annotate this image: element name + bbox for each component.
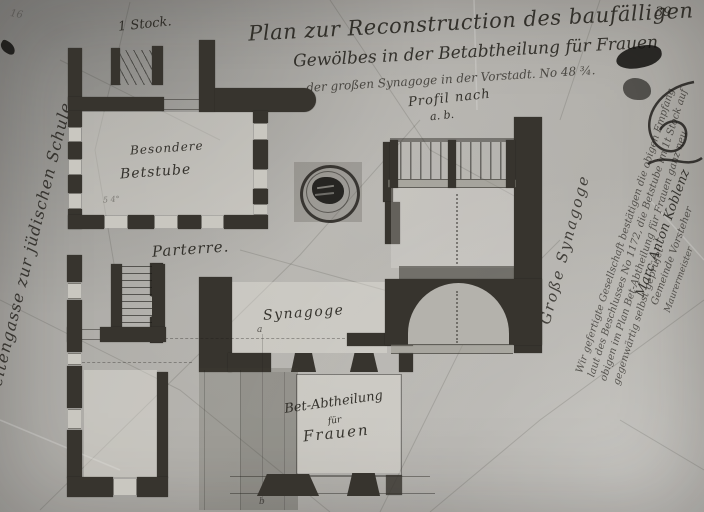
wall-segment xyxy=(128,215,154,229)
window-opening xyxy=(68,409,81,429)
pier xyxy=(386,475,402,495)
window-opening xyxy=(254,123,267,140)
wall-segment xyxy=(399,353,413,372)
section-trace-line xyxy=(204,370,205,510)
wall-segment xyxy=(224,215,268,229)
pier xyxy=(347,473,380,496)
wall-segment xyxy=(68,111,82,127)
window-opening xyxy=(68,353,81,365)
construction-line xyxy=(82,362,192,363)
window-opening xyxy=(69,193,81,209)
wall-segment xyxy=(253,140,268,169)
window-opening xyxy=(68,283,81,299)
door-opening xyxy=(81,329,100,340)
section-point-b: b xyxy=(259,498,265,507)
section-axis-dotted xyxy=(456,194,458,264)
stair-wall xyxy=(152,264,165,330)
balustrade-post xyxy=(506,140,515,188)
wall-segment xyxy=(67,255,82,282)
wall-segment xyxy=(68,175,82,193)
wall-segment xyxy=(137,477,168,497)
staircase-upper xyxy=(120,50,152,85)
vault-layer-band xyxy=(399,266,515,279)
window-opening xyxy=(254,204,267,215)
wall-segment xyxy=(100,327,166,342)
wall-segment xyxy=(178,215,201,229)
scanned-plan-sheet: 39 16 Plan zur Reconstruction des baufäl… xyxy=(0,0,704,512)
pier xyxy=(350,353,378,372)
window-opening xyxy=(254,169,267,189)
wall-segment xyxy=(68,97,164,111)
staircase-lower xyxy=(122,266,152,326)
wall-segment xyxy=(67,300,82,352)
door-opening xyxy=(113,479,137,495)
window-opening xyxy=(69,127,81,142)
corner-mark: 16 xyxy=(9,9,23,21)
wall-segment xyxy=(67,477,113,497)
wall-segment xyxy=(67,366,82,408)
section-title-2: a. b. xyxy=(429,109,454,122)
construction-line xyxy=(165,338,345,339)
window-opening xyxy=(201,216,224,228)
window-opening xyxy=(69,159,81,175)
section-trace-line xyxy=(240,370,241,510)
wall-segment xyxy=(199,40,215,112)
wall-segment xyxy=(68,142,82,159)
wall-segment xyxy=(68,215,104,229)
wall-segment xyxy=(253,111,268,123)
arch-axis-dotted xyxy=(456,291,458,343)
stair-wall xyxy=(152,46,163,85)
section-floor-band xyxy=(391,344,513,354)
lower-room-floor xyxy=(84,370,157,477)
window-opening xyxy=(154,216,178,228)
wall-segment xyxy=(157,372,168,478)
wall-segment xyxy=(253,189,268,204)
door-opening xyxy=(164,99,199,110)
stair-wall xyxy=(111,264,122,330)
signature-flourish xyxy=(630,72,704,182)
balustrade-post xyxy=(448,140,456,188)
scale-marks: 5 4° xyxy=(103,195,120,204)
window-opening xyxy=(104,216,128,228)
wall-segment xyxy=(215,88,316,112)
section-wall-face xyxy=(391,188,514,268)
stair-wall xyxy=(111,48,120,85)
stamp-seal-center xyxy=(312,177,344,204)
wall-segment xyxy=(67,430,82,478)
balustrade-post xyxy=(390,140,398,188)
pier xyxy=(257,474,319,496)
